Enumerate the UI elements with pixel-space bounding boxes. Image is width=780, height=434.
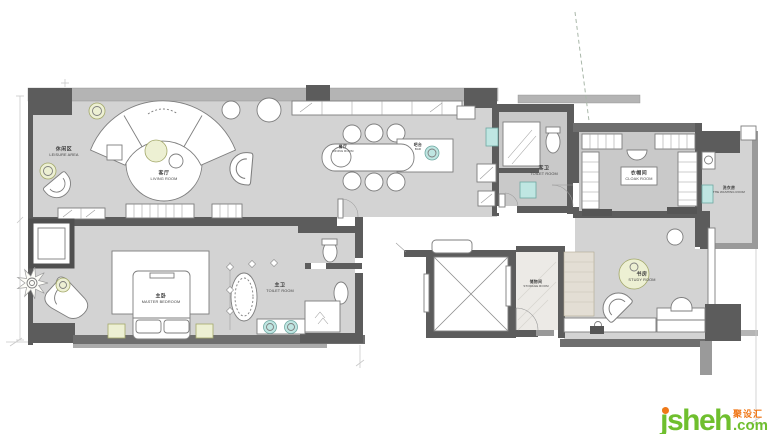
window-right: [708, 228, 715, 306]
basin: [520, 182, 536, 198]
nightstand: [196, 324, 213, 338]
pillow: [136, 320, 161, 333]
bench: [667, 207, 697, 214]
toilet: [546, 131, 560, 153]
square-table: [107, 145, 122, 160]
bench: [582, 209, 612, 216]
cabinet: [58, 208, 105, 219]
watermark-jsheh-logo: jsheh 聚设汇 .com: [660, 408, 768, 434]
boundary-dashed-line: [575, 12, 589, 121]
window-band-top: [28, 88, 498, 101]
dining-chair: [365, 173, 383, 191]
watermark-tld: .com: [733, 420, 768, 433]
side-table: [169, 154, 183, 168]
plant-pot: [222, 101, 240, 119]
counter-sink: [425, 146, 439, 160]
round-table: [619, 259, 649, 289]
watermark-name: jsheh: [660, 408, 731, 434]
column: [28, 88, 72, 115]
basin: [285, 321, 298, 334]
basin: [264, 321, 277, 334]
door-leaf: [338, 199, 343, 218]
shower-tray: [503, 122, 540, 166]
dining-chair: [365, 124, 383, 142]
dining-chair: [387, 173, 405, 191]
entry-cabinet: [457, 106, 475, 119]
round-stool: [40, 163, 56, 179]
pillow: [164, 320, 189, 333]
plant-pot: [257, 98, 281, 122]
round-stool: [89, 103, 105, 119]
floor-plan-image: 休闲区 LEISURE AREA 客厅 LIVING ROOM 餐厅 DININ…: [0, 0, 780, 434]
shower: [305, 301, 340, 332]
wardrobe: [582, 134, 622, 149]
wardrobe: [126, 204, 194, 218]
wardrobe-side: [582, 152, 599, 209]
nightstand: [108, 324, 125, 338]
kitchen-cabinets: [292, 101, 462, 115]
laundry-sink: [702, 185, 713, 203]
coffee-table: [145, 140, 167, 162]
stool: [667, 229, 683, 245]
bookcase: [564, 252, 594, 316]
watermark-orange-dot-icon: [662, 407, 669, 414]
dining-chair: [343, 125, 361, 143]
small-table: [56, 278, 70, 292]
label-box: [621, 167, 657, 185]
bed: [133, 271, 190, 339]
floor-plan-drawing: [0, 0, 780, 434]
wardrobe-side: [678, 152, 697, 206]
wardrobe: [655, 134, 695, 149]
washing-machine: [702, 152, 715, 169]
bathtub: [231, 273, 257, 321]
vanity-sink: [486, 128, 498, 146]
dining-chair: [343, 172, 361, 190]
wardrobe: [212, 204, 242, 218]
shoe-cabinet: [432, 240, 472, 253]
door-leaf: [499, 194, 505, 207]
elevator-shaft: [396, 243, 516, 338]
